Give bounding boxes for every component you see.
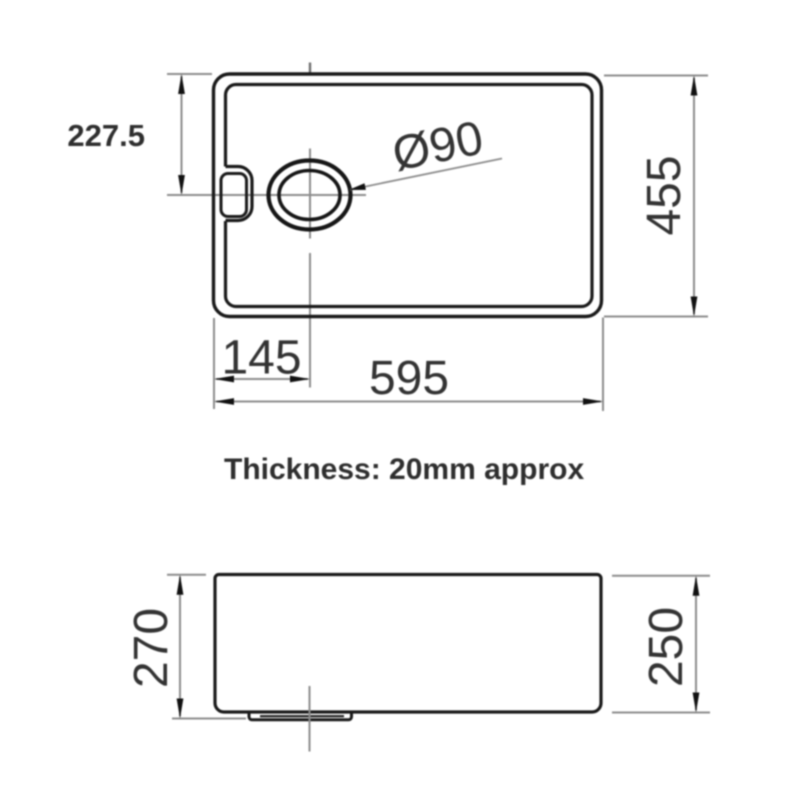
svg-text:455: 455 bbox=[638, 155, 691, 235]
svg-text:595: 595 bbox=[369, 352, 449, 405]
svg-text:145: 145 bbox=[221, 332, 301, 385]
svg-text:227.5: 227.5 bbox=[67, 118, 145, 153]
svg-text:270: 270 bbox=[125, 608, 178, 688]
svg-text:Thickness: 20mm approx: Thickness: 20mm approx bbox=[224, 453, 584, 486]
svg-text:250: 250 bbox=[640, 607, 693, 687]
